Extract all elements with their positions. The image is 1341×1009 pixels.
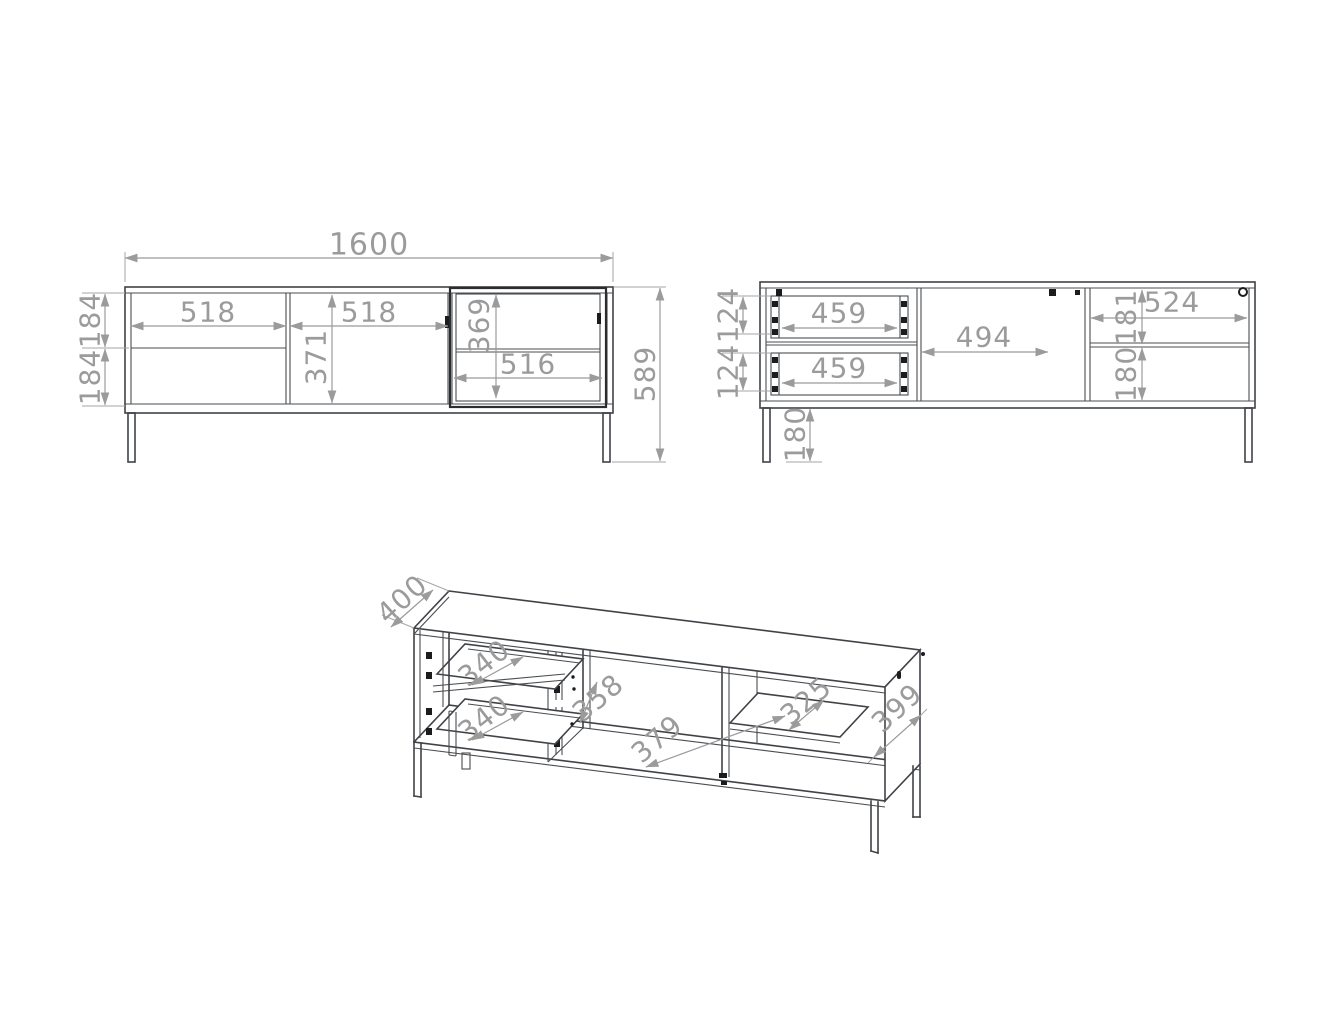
dim-back-below-shelf-height: 180 (1110, 346, 1143, 402)
dim-back-top-drawer-width: 459 (811, 297, 867, 330)
drawing-sheet: 1600 518 518 371 369 516 184 184 589 (0, 0, 1341, 1005)
dim-front-top-drawer-height: 184 (74, 292, 107, 348)
front-view: 1600 518 518 371 369 516 184 184 589 (74, 228, 667, 463)
front-legs (128, 413, 610, 462)
iso-keyhole-mark (897, 671, 901, 679)
dim-back-leg-height: 180 (779, 406, 812, 462)
dim-back-bottom-drawer-width: 459 (811, 352, 867, 385)
back-legs (763, 408, 1252, 462)
dim-iso-bottom-drawer-depth: 340 (452, 688, 517, 749)
back-drawer-divider (766, 342, 917, 345)
dim-back-right-section-width: 524 (1144, 286, 1200, 319)
dim-front-glass-shelf-width: 516 (500, 348, 556, 381)
dim-front-drawer-section-width: 518 (180, 296, 236, 329)
furniture-dimension-drawing: 1600 518 518 371 369 516 184 184 589 (0, 0, 1341, 1005)
dim-back-above-shelf-height: 181 (1110, 289, 1143, 345)
dim-front-door-height: 371 (300, 329, 333, 385)
dim-front-overall-height: 589 (629, 346, 662, 402)
isometric-view: 400 340 340 358 379 325 399 (370, 568, 929, 853)
back-dimensions: 124 124 459 459 494 524 181 180 180 (712, 286, 1248, 463)
front-dimensions: 1600 518 518 371 369 516 184 184 589 (74, 228, 667, 463)
back-view: 124 124 459 459 494 524 181 180 180 (712, 282, 1256, 462)
dim-front-overall-width: 1600 (329, 228, 409, 263)
dim-iso-top-drawer-depth: 340 (452, 633, 517, 694)
dim-back-middle-opening-width: 494 (956, 321, 1012, 354)
dim-front-bottom-drawer-height: 184 (74, 349, 107, 405)
dim-back-bottom-drawer-back-height: 124 (712, 344, 745, 400)
dim-back-top-drawer-back-height: 124 (712, 287, 745, 343)
dim-iso-middle-floor-width: 379 (625, 708, 689, 770)
glass-door-handle (597, 313, 601, 324)
dim-front-door-width: 518 (341, 296, 397, 329)
dim-front-glass-height: 369 (463, 297, 496, 353)
